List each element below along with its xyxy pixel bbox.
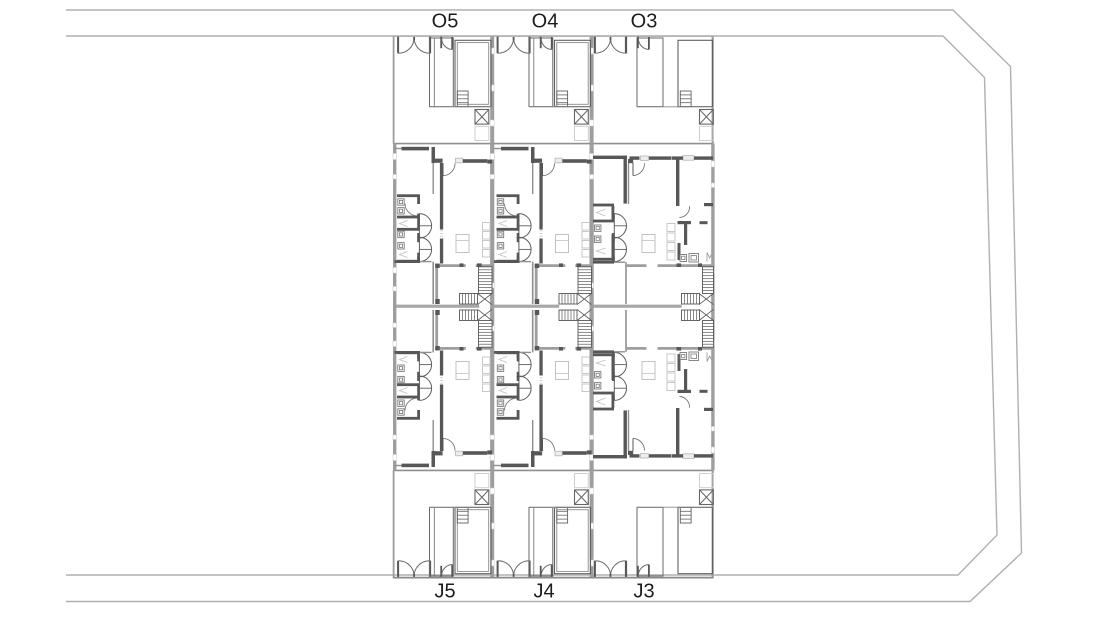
svg-text:J5: J5 [434,581,455,603]
svg-text:O5: O5 [432,11,459,33]
svg-text:O4: O4 [532,11,559,33]
svg-text:O3: O3 [631,11,658,33]
svg-text:J4: J4 [533,581,554,603]
svg-text:J3: J3 [633,581,654,603]
